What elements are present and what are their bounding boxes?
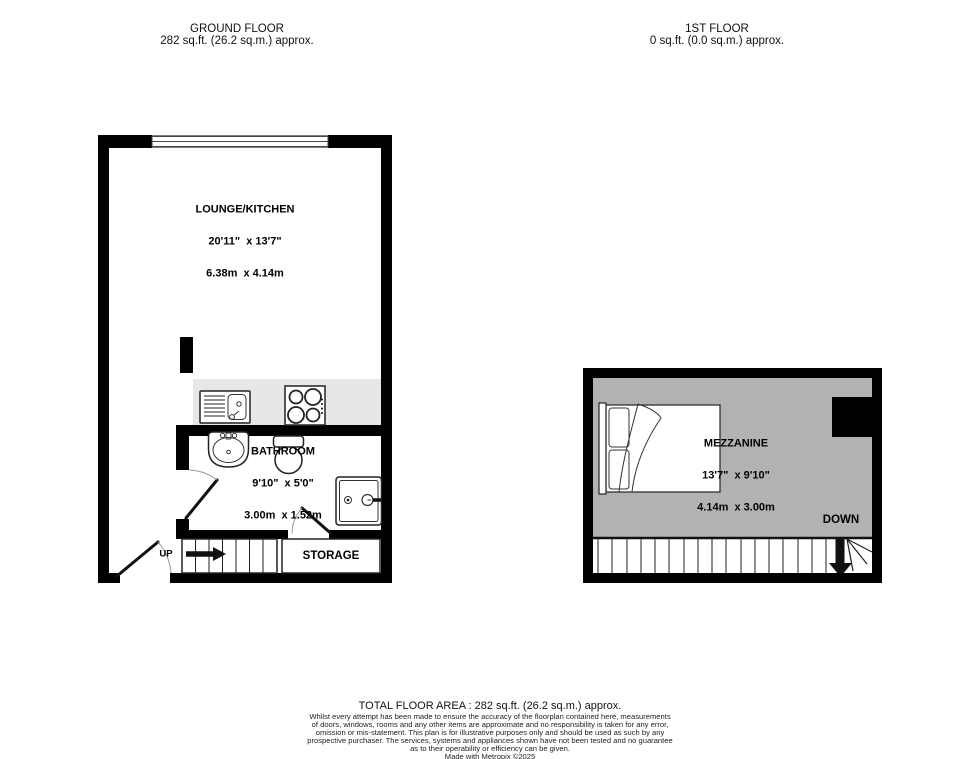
hob (285, 386, 325, 425)
floorplan-canvas: GROUND FLOOR 282 sq.ft. (26.2 sq.m.) app… (0, 0, 980, 759)
ground-floor-title: GROUND FLOOR (190, 23, 284, 35)
pillow (609, 450, 629, 489)
window (152, 136, 328, 148)
shower (336, 477, 382, 525)
room-dims-metric: 3.00m x 1.52m (244, 511, 322, 522)
bathroom-label: BATHROOM 9'10" x 5'0" 3.00m x 1.52m (244, 425, 322, 544)
metropix-credit: Made with Metropix ©2025 (180, 753, 800, 759)
floorplan-drawing (0, 0, 980, 759)
staircase-down (593, 537, 872, 577)
kitchen-sink (200, 391, 250, 423)
void-block (832, 397, 872, 437)
total-floor-area: TOTAL FLOOR AREA : 282 sq.ft. (26.2 sq.m… (359, 700, 622, 712)
room-dims-imperial: 13'7" x 9'10" (697, 471, 775, 482)
ground-floor-area: 282 sq.ft. (26.2 sq.m.) approx. (160, 35, 313, 47)
room-name: BATHROOM (244, 446, 322, 457)
first-floor-title: 1ST FLOOR (685, 23, 749, 35)
staircase-up (182, 539, 277, 573)
basin (209, 432, 249, 467)
up-label: UP (159, 549, 172, 560)
down-label: DOWN (823, 514, 859, 526)
bathroom-door (186, 470, 217, 518)
room-name: MEZZANINE (697, 438, 775, 449)
disclaimer: Whilst every attempt has been made to en… (180, 713, 800, 759)
pillow (609, 408, 629, 447)
first-floor-area: 0 sq.ft. (0.0 sq.m.) approx. (650, 35, 784, 47)
room-dims-metric: 4.14m x 3.00m (697, 503, 775, 514)
room-dims-metric: 6.38m x 4.14m (196, 269, 295, 280)
mezzanine-label: MEZZANINE 13'7" x 9'10" 4.14m x 3.00m (697, 417, 775, 536)
room-name: LOUNGE/KITCHEN (196, 204, 295, 215)
bed-headboard (599, 403, 606, 494)
room-dims-imperial: 9'10" x 5'0" (244, 479, 322, 490)
lounge-kitchen-label: LOUNGE/KITCHEN 20'11" x 13'7" 6.38m x 4.… (196, 183, 295, 302)
room-dims-imperial: 20'11" x 13'7" (196, 237, 295, 248)
storage-label: STORAGE (303, 550, 360, 562)
